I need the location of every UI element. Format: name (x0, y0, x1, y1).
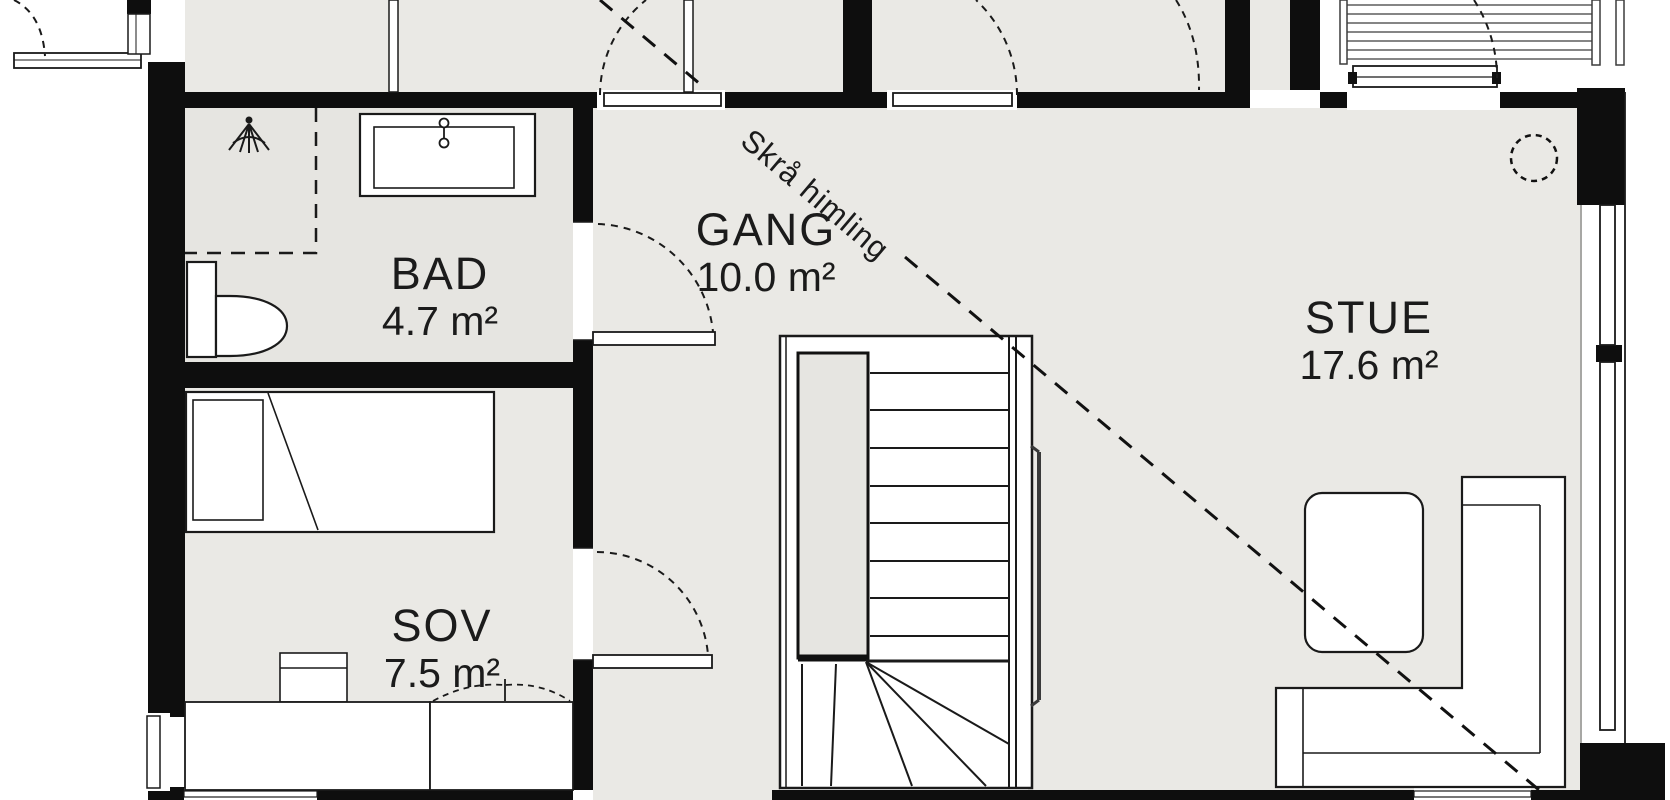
balcony-deck (1340, 0, 1624, 65)
door-top-2 (887, 90, 1017, 110)
vanity-sink (360, 114, 535, 196)
bed (186, 392, 494, 532)
door-top-1 (597, 90, 725, 110)
floor-plan-drawing (0, 0, 1670, 800)
floor-plan: BAD 4.7 m² GANG 10.0 m² SOV 7.5 m² STUE … (0, 0, 1670, 800)
window-left (140, 713, 170, 791)
desk (185, 702, 430, 790)
floor-gang-stue (593, 108, 1580, 360)
armchair (1305, 493, 1423, 652)
desk-chair (280, 653, 347, 702)
floor-corridor (593, 360, 780, 800)
porch-sill (14, 14, 150, 68)
stair-newel (798, 353, 868, 658)
window-bottom-stue (1414, 788, 1531, 800)
door-arc-porch (14, 0, 45, 56)
living-room-furniture (1276, 477, 1565, 787)
door-balcony (1347, 66, 1501, 110)
stairs (780, 336, 1032, 788)
